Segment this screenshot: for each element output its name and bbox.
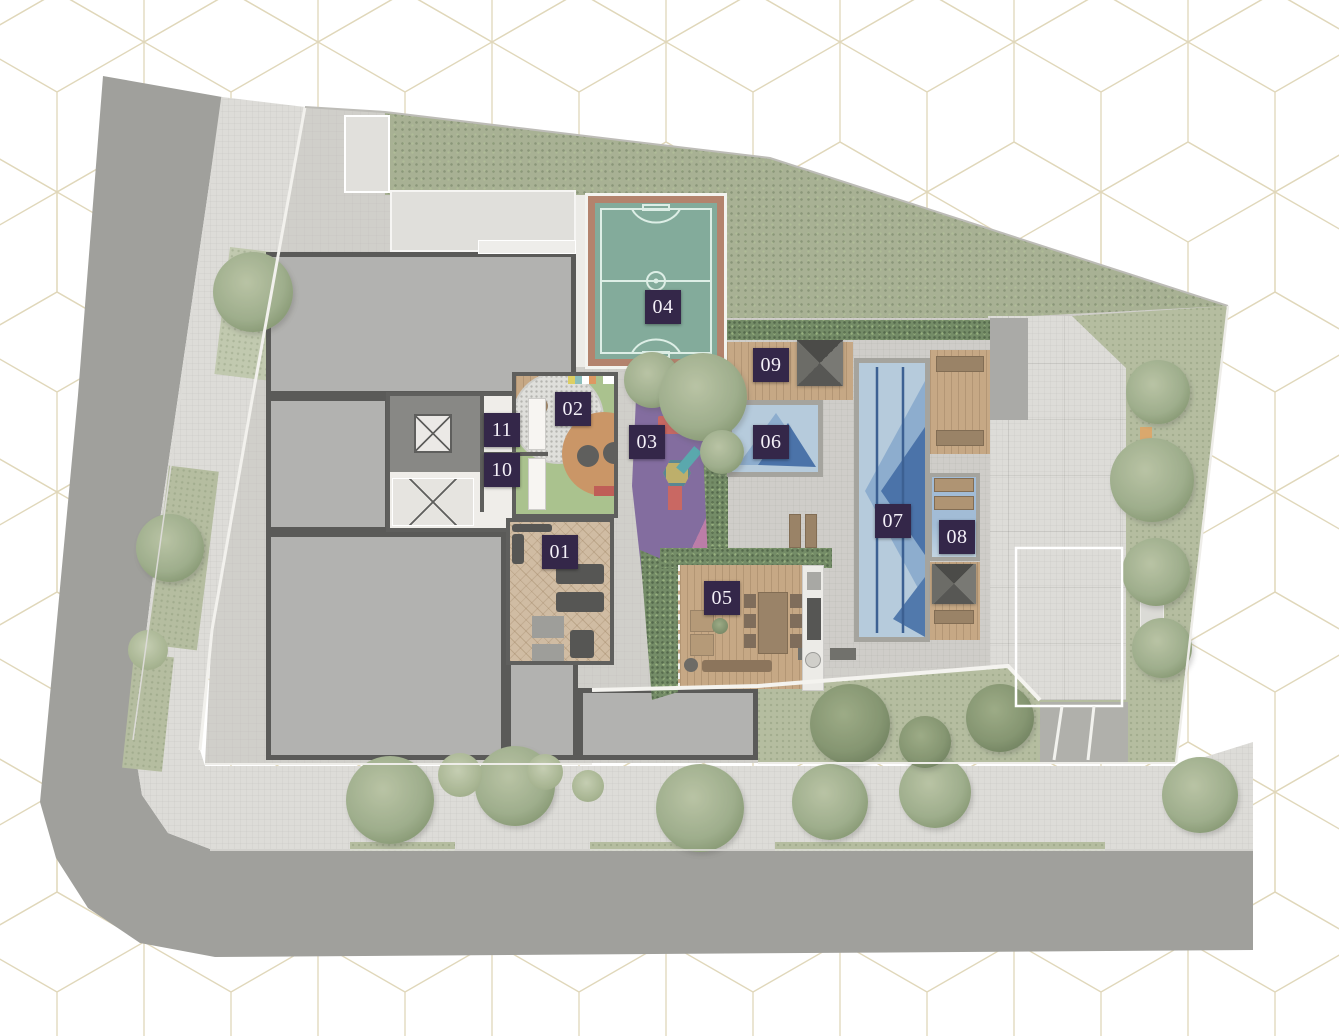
marker-10[interactable]: 10 [484, 453, 520, 487]
marker-01[interactable]: 01 [542, 535, 578, 569]
marker-02[interactable]: 02 [555, 392, 591, 426]
marker-06[interactable]: 06 [753, 425, 789, 459]
marker-05[interactable]: 05 [704, 581, 740, 615]
marker-11[interactable]: 11 [484, 413, 520, 447]
marker-09[interactable]: 09 [753, 348, 789, 382]
marker-04[interactable]: 04 [645, 290, 681, 324]
marker-08[interactable]: 08 [939, 520, 975, 554]
marker-03[interactable]: 03 [629, 425, 665, 459]
marker-layer: 0102030405060708091011 [0, 0, 1339, 1036]
site-plan-canvas: 0102030405060708091011 [0, 0, 1339, 1036]
marker-07[interactable]: 07 [875, 504, 911, 538]
